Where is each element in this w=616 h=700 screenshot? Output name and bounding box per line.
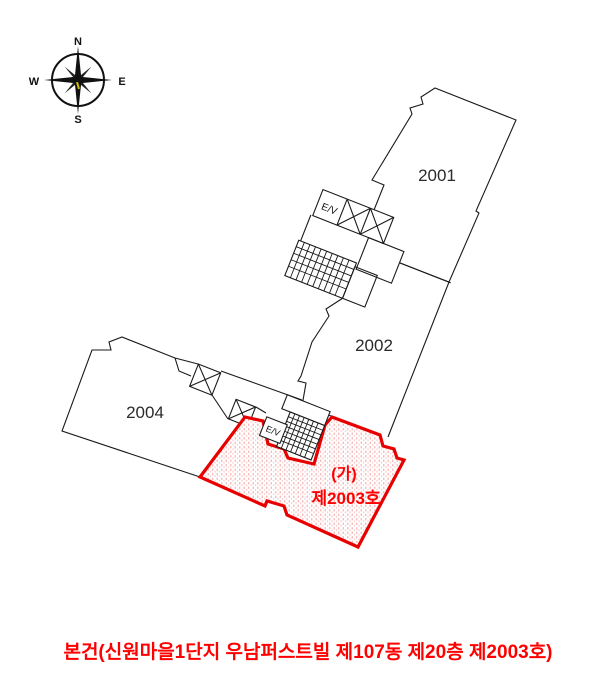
subject-unit-label: 제2003호 <box>311 489 380 508</box>
compass-center-dot <box>76 78 80 82</box>
compass-east-needle-icon <box>78 77 112 84</box>
building-2002-left-outline <box>298 298 343 416</box>
unit-2002-label: 2002 <box>355 336 393 355</box>
compass-north-label: N <box>74 36 82 48</box>
floorplan-drawing: E/V E/V 2001 2002 2004 (가) 제2003호 <box>0 0 616 700</box>
subject-mark-label: (가) <box>331 465 356 483</box>
caption: 본건(신원마을1단지 우남퍼스트빌 제107동 제20층 제2003호) <box>0 637 616 664</box>
compass-rose: N E S W <box>29 36 126 126</box>
unit-2004-label: 2004 <box>126 403 164 422</box>
core-connector-line <box>301 215 311 241</box>
unit-2001-label: 2001 <box>418 166 456 185</box>
compass-west-label: W <box>29 76 40 88</box>
building-2001-outline <box>372 88 516 437</box>
compass-north-needle-icon <box>75 46 82 80</box>
core-hall <box>356 238 404 284</box>
compass-east-label: E <box>118 76 125 88</box>
compass-west-needle-icon <box>44 77 78 84</box>
compass-south-label: S <box>74 114 81 126</box>
divider-2001-2002 <box>400 263 449 282</box>
